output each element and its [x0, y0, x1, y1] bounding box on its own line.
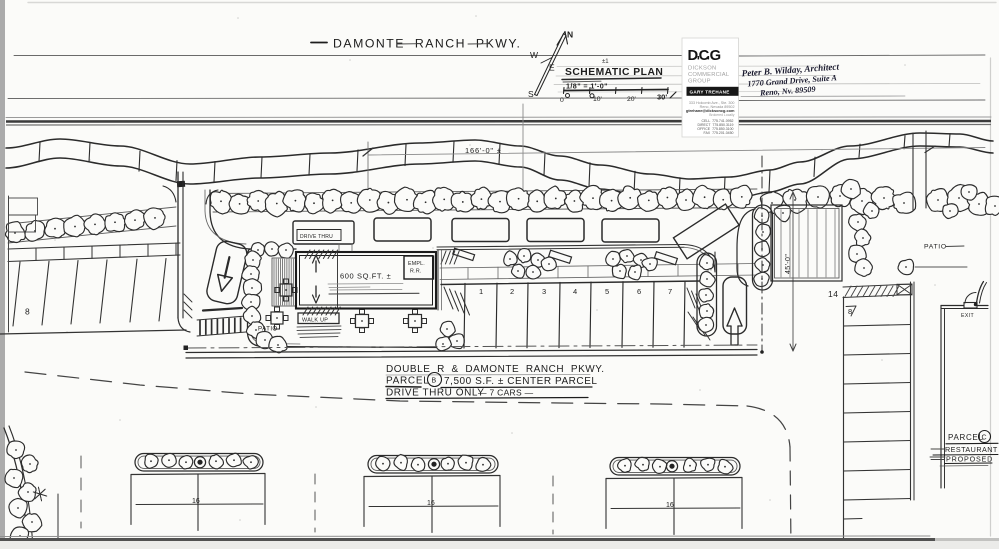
svg-text:7: 7: [668, 287, 672, 296]
svg-text:— 7 CARS —: — 7 CARS —: [478, 388, 534, 398]
svg-text:EXIT: EXIT: [961, 313, 975, 319]
svg-text:7,500 S.F. ± CENTER PARCEL: 7,500 S.F. ± CENTER PARCEL: [444, 376, 598, 387]
svg-text:RESTAURANT: RESTAURANT: [945, 445, 998, 454]
svg-text:6: 6: [637, 287, 641, 296]
svg-text:R.R.: R.R.: [410, 269, 422, 275]
svg-text:1/8" = 1'-0": 1/8" = 1'-0": [566, 82, 608, 91]
svg-text:N: N: [567, 30, 573, 40]
svg-text:DOUBLE R & DAMONTE RANCH: DOUBLE R & DAMONTE RANCH PKWY.: [386, 364, 605, 375]
svg-text:DRIVE THRU ONLY: DRIVE THRU ONLY: [386, 388, 484, 399]
svg-text:2: 2: [510, 287, 514, 296]
svg-text:45'-0": 45'-0": [785, 254, 792, 274]
svg-text:DICKSON: DICKSON: [688, 65, 717, 71]
svg-text:DCG: DCG: [688, 48, 722, 64]
svg-text:600 SQ.FT. ±: 600 SQ.FT. ±: [340, 272, 391, 281]
svg-text:COMMERCIAL: COMMERCIAL: [688, 72, 730, 78]
svg-text:PATIO: PATIO: [924, 244, 947, 251]
svg-text:0: 0: [560, 97, 564, 104]
svg-text:8: 8: [25, 307, 30, 317]
svg-text:EMPL.: EMPL.: [408, 261, 425, 267]
svg-text:30': 30': [657, 93, 667, 102]
svg-text:WALK UP: WALK UP: [302, 317, 328, 323]
svg-text:W: W: [530, 50, 538, 60]
svg-text:S: S: [528, 89, 534, 99]
svg-text:±1: ±1: [602, 59, 609, 65]
svg-text:20': 20': [627, 96, 636, 103]
svg-text:GARY TREHANE: GARY TREHANE: [690, 89, 730, 94]
svg-text:DAMONTE RANCH PKWY.: DAMONTE RANCH PKWY.: [333, 37, 521, 51]
svg-text:C: C: [982, 435, 987, 442]
svg-text:GROUP: GROUP: [688, 79, 711, 85]
svg-text:PATIO: PATIO: [258, 326, 278, 333]
svg-text:16: 16: [427, 500, 435, 507]
svg-text:4: 4: [573, 287, 577, 296]
svg-text:E: E: [549, 63, 555, 73]
svg-text:166'-0" ±: 166'-0" ±: [465, 146, 502, 155]
svg-text:Brokered Locally: Brokered Locally: [709, 113, 735, 117]
svg-text:B: B: [432, 378, 437, 385]
svg-text:14: 14: [828, 289, 838, 299]
svg-text:10': 10': [593, 96, 602, 103]
svg-text:16: 16: [666, 502, 674, 509]
svg-text:1: 1: [479, 287, 483, 296]
svg-text:FAX 775.201.0450: FAX 775.201.0450: [704, 131, 734, 135]
svg-text:PARCEL: PARCEL: [386, 376, 429, 387]
svg-text:3: 3: [542, 287, 546, 296]
svg-text:16: 16: [192, 498, 200, 505]
svg-text:DRIVE THRU: DRIVE THRU: [300, 234, 333, 240]
svg-text:SCHEMATIC PLAN: SCHEMATIC PLAN: [565, 67, 663, 78]
svg-text:PROPOSED: PROPOSED: [946, 455, 993, 464]
svg-text:5: 5: [605, 287, 609, 296]
